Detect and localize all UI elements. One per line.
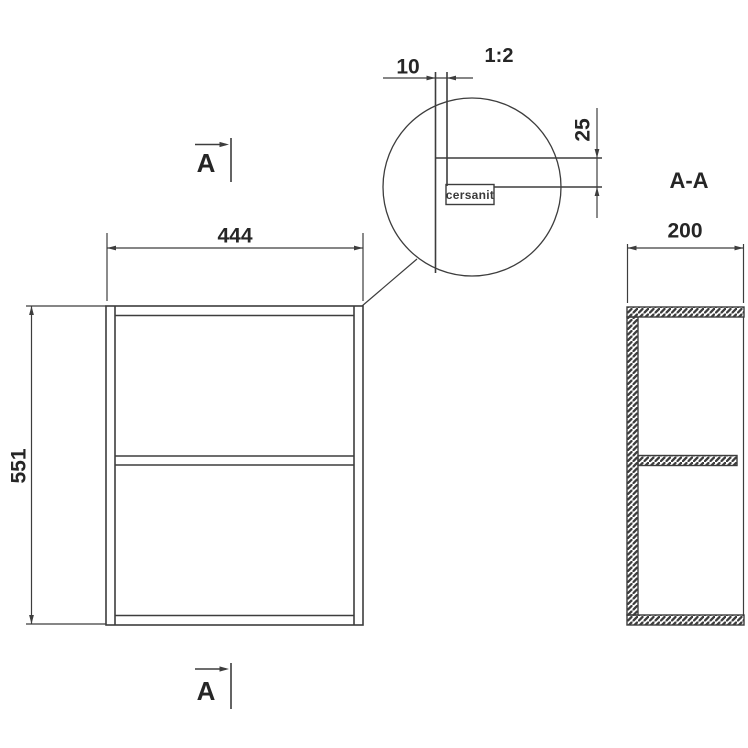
drawing-linework [0, 0, 748, 748]
width-dimension-label: 444 [217, 226, 252, 247]
offset-dimension-label: 25 [573, 118, 594, 141]
section-view-label: A-A [669, 170, 708, 192]
front-view [106, 306, 363, 625]
section-view [627, 307, 744, 625]
depth-dimension-label: 200 [667, 221, 702, 242]
offset-dimension-lines [595, 108, 600, 218]
thickness-dimension-label: 10 [396, 57, 419, 78]
height-dimension-label: 551 [9, 448, 30, 483]
detail-scale-label: 1:2 [485, 46, 514, 66]
section-marker-letter-top: A [197, 150, 216, 176]
section-marker-letter-bottom: A [197, 678, 216, 704]
depth-dimension-lines [628, 244, 744, 303]
technical-drawing-canvas: 444 551 200 10 25 1:2 A-A A A cersanit [0, 0, 748, 748]
height-dimension-lines [26, 306, 106, 624]
brand-logo-text: cersanit [446, 189, 494, 201]
